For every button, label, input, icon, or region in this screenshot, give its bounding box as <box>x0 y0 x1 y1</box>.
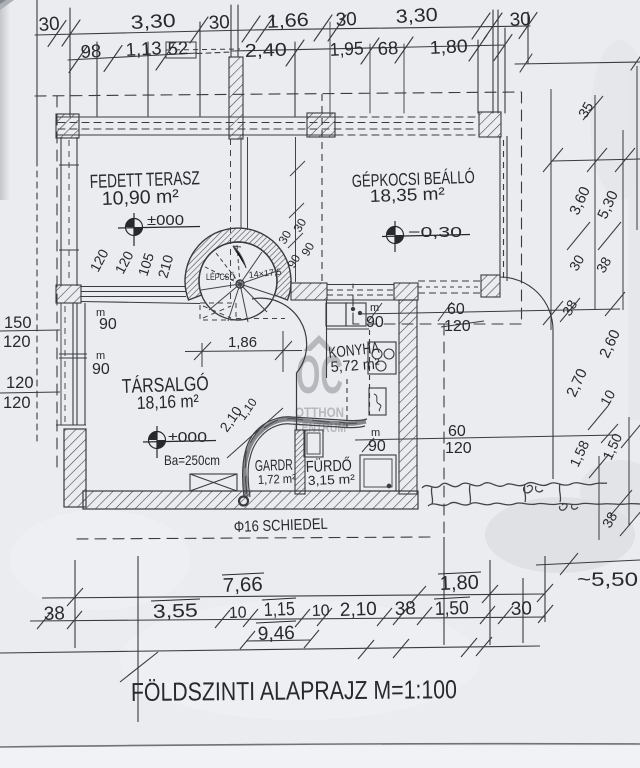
svg-text:38: 38 <box>559 297 581 319</box>
svg-text:30: 30 <box>275 228 294 247</box>
svg-text:52: 52 <box>167 37 189 59</box>
svg-text:1,86: 1,86 <box>228 334 257 351</box>
svg-text:5,30: 5,30 <box>594 188 622 222</box>
svg-text:3,55: 3,55 <box>152 600 198 623</box>
svg-text:3,30: 3,30 <box>130 11 176 34</box>
svg-text:Φ16 SCHIEDEL: Φ16 SCHIEDEL <box>234 516 329 536</box>
svg-text:150: 150 <box>4 314 32 332</box>
svg-text:120: 120 <box>444 318 471 335</box>
svg-text:±000: ±000 <box>147 212 184 229</box>
svg-text:68: 68 <box>377 37 399 59</box>
svg-text:38: 38 <box>599 509 621 531</box>
svg-text:10: 10 <box>597 387 619 409</box>
svg-text:120: 120 <box>445 440 472 457</box>
svg-text:90: 90 <box>92 361 110 378</box>
svg-text:90: 90 <box>368 438 386 455</box>
svg-text:30: 30 <box>208 12 230 34</box>
svg-text:30: 30 <box>566 252 588 274</box>
svg-text:90: 90 <box>99 316 117 333</box>
svg-text:−0,30: −0,30 <box>408 224 462 241</box>
svg-text:7,66: 7,66 <box>222 574 263 597</box>
svg-text:~5,50: ~5,50 <box>577 570 638 591</box>
svg-text:9,46: 9,46 <box>257 623 295 645</box>
svg-text:30: 30 <box>510 598 532 620</box>
svg-text:3,30: 3,30 <box>395 5 438 28</box>
svg-text:1,15: 1,15 <box>263 599 295 621</box>
svg-text:3,60: 3,60 <box>566 184 594 218</box>
svg-text:30: 30 <box>509 9 531 31</box>
svg-text:m: m <box>370 302 379 314</box>
svg-text:1,50: 1,50 <box>434 598 469 620</box>
svg-text:30: 30 <box>38 14 61 36</box>
svg-text:120: 120 <box>112 248 137 276</box>
svg-text:90: 90 <box>284 252 303 271</box>
svg-text:10: 10 <box>229 604 247 622</box>
svg-text:1,66: 1,66 <box>266 10 309 33</box>
svg-text:35: 35 <box>575 99 597 121</box>
svg-text:90: 90 <box>298 240 317 259</box>
svg-text:18,35 m²: 18,35 m² <box>369 183 445 206</box>
svg-text:120: 120 <box>3 333 31 351</box>
svg-text:1,50: 1,50 <box>599 431 625 463</box>
svg-text:2,70: 2,70 <box>563 366 591 400</box>
svg-text:1,80: 1,80 <box>429 35 468 58</box>
svg-text:30: 30 <box>290 216 309 235</box>
svg-text:98: 98 <box>80 40 102 62</box>
svg-text:60: 60 <box>448 423 466 440</box>
svg-text:5,72 m²: 5,72 m² <box>330 356 380 376</box>
svg-text:1,95: 1,95 <box>329 37 364 60</box>
svg-text:Ba=250cm: Ba=250cm <box>164 452 220 468</box>
svg-text:120: 120 <box>87 246 112 274</box>
svg-text:3,15 m²: 3,15 m² <box>308 471 356 488</box>
svg-text:2,10: 2,10 <box>339 599 377 621</box>
svg-text:1,58: 1,58 <box>566 438 592 470</box>
svg-text:120: 120 <box>6 374 34 392</box>
svg-text:30: 30 <box>335 9 357 31</box>
svg-text:60: 60 <box>447 301 465 318</box>
svg-text:1,72 m²: 1,72 m² <box>258 472 296 487</box>
svg-text:90: 90 <box>366 314 384 331</box>
svg-text:38: 38 <box>43 603 65 625</box>
svg-text:2,40: 2,40 <box>244 39 287 61</box>
svg-text:10,90 m²: 10,90 m² <box>101 186 179 210</box>
svg-text:18,16 m²: 18,16 m² <box>136 391 199 413</box>
svg-text:FÖLDSZINTI ALAPRAJZ M=1:100: FÖLDSZINTI ALAPRAJZ M=1:100 <box>131 674 457 707</box>
svg-text:±000: ±000 <box>168 429 207 446</box>
svg-text:38: 38 <box>394 598 416 620</box>
svg-text:105: 105 <box>135 251 158 278</box>
svg-text:210: 210 <box>155 253 177 280</box>
svg-text:120: 120 <box>3 394 31 412</box>
svg-text:14×17,5: 14×17,5 <box>248 267 282 280</box>
svg-text:1,80: 1,80 <box>439 572 479 595</box>
svg-text:2,60: 2,60 <box>596 327 624 361</box>
svg-text:10: 10 <box>312 602 330 620</box>
svg-text:1,13: 1,13 <box>125 37 162 60</box>
svg-text:LÉPCSŐ: LÉPCSŐ <box>206 272 235 282</box>
svg-text:38: 38 <box>593 254 615 276</box>
